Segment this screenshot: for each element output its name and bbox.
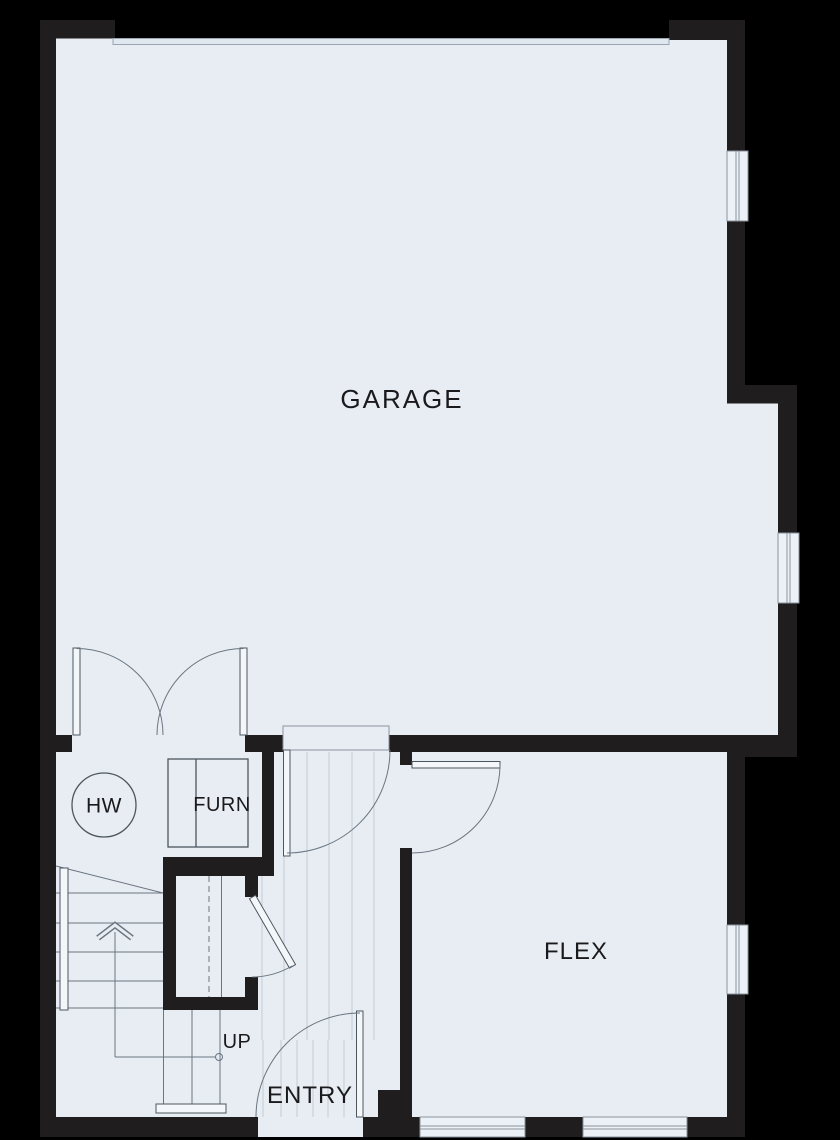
stair-handrail <box>60 868 68 1010</box>
garage-overhead-door <box>113 39 669 45</box>
entry-room-label: ENTRY <box>267 1084 353 1108</box>
garage-man-door-header <box>283 726 389 750</box>
garage-right-window-upper <box>727 151 748 221</box>
stairs-up-label: UP <box>223 1032 252 1052</box>
flex-right-window <box>727 925 748 994</box>
garage-right-window-lower <box>778 533 799 603</box>
flex-bottom-window-left <box>420 1117 525 1137</box>
flex-room-label: FLEX <box>544 940 608 964</box>
floor-plan-drawing <box>0 0 840 1140</box>
floor-plan: GARAGE FLEX ENTRY HW FURN UP <box>0 0 840 1140</box>
flex-bottom-window-right <box>583 1117 687 1137</box>
hot-water-label: HW <box>86 796 122 817</box>
garage-room-label: GARAGE <box>340 386 463 412</box>
bottom-step <box>156 1104 226 1113</box>
furnace-label: FURN <box>193 795 251 815</box>
